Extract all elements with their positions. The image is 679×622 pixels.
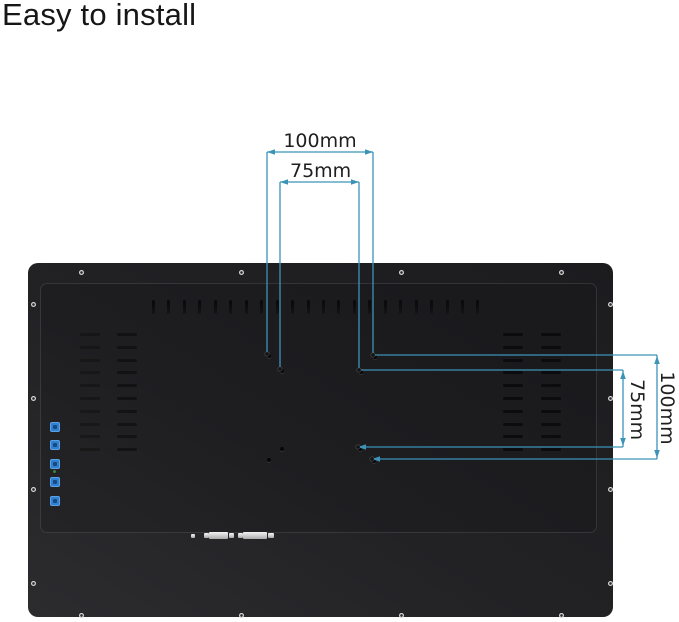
monitor-inner-panel bbox=[40, 283, 597, 533]
vent-slot-side bbox=[541, 359, 561, 362]
screw bbox=[559, 270, 564, 275]
side-control-button bbox=[50, 459, 60, 469]
vent-slot-top bbox=[260, 300, 263, 314]
vent-slot-side bbox=[541, 448, 561, 451]
screw bbox=[79, 613, 84, 618]
vent-slot-side bbox=[541, 397, 561, 400]
vent-slot-side bbox=[503, 346, 523, 349]
vesa-mount-hole bbox=[267, 458, 271, 462]
io-port bbox=[209, 532, 228, 539]
vent-slot-top bbox=[430, 300, 433, 314]
vesa-mount-hole bbox=[267, 354, 271, 358]
vent-slot-side bbox=[541, 410, 561, 413]
vent-slot-side bbox=[80, 435, 100, 438]
vent-slot-top bbox=[384, 300, 387, 314]
screw bbox=[608, 302, 613, 307]
io-port bbox=[229, 533, 234, 538]
vent-slot-side bbox=[541, 423, 561, 426]
screw bbox=[608, 581, 613, 586]
vent-slot-top bbox=[446, 300, 449, 314]
vent-slot-top bbox=[198, 300, 201, 314]
vent-slot-side bbox=[541, 371, 561, 374]
vent-slot-side bbox=[503, 384, 523, 387]
vent-slot-side bbox=[117, 359, 137, 362]
vent-slot-side bbox=[541, 346, 561, 349]
page-title: Easy to install bbox=[2, 0, 196, 35]
product-image: Easy to install bbox=[0, 0, 679, 622]
vent-slot-side bbox=[541, 333, 561, 336]
power-led bbox=[53, 470, 56, 473]
vent-slot-top bbox=[167, 300, 170, 314]
vent-slot-side bbox=[541, 384, 561, 387]
dim-label-right-75mm: 75mm bbox=[626, 379, 648, 439]
vent-slot-top bbox=[214, 300, 217, 314]
vent-slot-top bbox=[276, 300, 279, 314]
io-port bbox=[191, 534, 195, 538]
vesa-mount-hole bbox=[280, 369, 284, 373]
screw bbox=[399, 613, 404, 618]
vent-slot-side bbox=[80, 397, 100, 400]
io-port bbox=[243, 532, 267, 539]
vent-slot-side bbox=[117, 448, 137, 451]
screw bbox=[239, 613, 244, 618]
vent-slot-side bbox=[80, 423, 100, 426]
vent-slot-top bbox=[353, 300, 356, 314]
screw bbox=[79, 270, 84, 275]
vesa-mount-hole bbox=[358, 447, 362, 451]
vent-slot-side bbox=[80, 346, 100, 349]
vent-slot-side bbox=[80, 359, 100, 362]
screw bbox=[608, 396, 613, 401]
vent-slot-top bbox=[183, 300, 186, 314]
vent-slot-side bbox=[117, 410, 137, 413]
vent-slot-top bbox=[152, 300, 155, 314]
vent-slot-top bbox=[229, 300, 232, 314]
vesa-mount-hole bbox=[373, 355, 377, 359]
vent-slot-side bbox=[503, 410, 523, 413]
vent-slot-side bbox=[80, 371, 100, 374]
vent-slot-top bbox=[337, 300, 340, 314]
screw bbox=[31, 487, 36, 492]
screw bbox=[559, 613, 564, 618]
screw bbox=[31, 396, 36, 401]
side-control-button bbox=[50, 440, 60, 450]
vent-slot-top bbox=[415, 300, 418, 314]
vent-slot-side bbox=[503, 448, 523, 451]
screw bbox=[399, 270, 404, 275]
vent-slot-side bbox=[80, 448, 100, 451]
vent-slot-top bbox=[368, 300, 371, 314]
vent-slot-side bbox=[117, 333, 137, 336]
vent-slot-top bbox=[399, 300, 402, 314]
vent-slot-side bbox=[503, 435, 523, 438]
dim-label-right-100mm: 100mm bbox=[656, 371, 678, 445]
vent-slot-top bbox=[245, 300, 248, 314]
vent-slot-side bbox=[503, 359, 523, 362]
vent-slot-side bbox=[80, 384, 100, 387]
vent-slot-side bbox=[117, 346, 137, 349]
vent-slot-top bbox=[291, 300, 294, 314]
vent-slot-top bbox=[307, 300, 310, 314]
io-port bbox=[268, 533, 274, 538]
vent-slot-side bbox=[117, 423, 137, 426]
dim-label-top-100mm: 100mm bbox=[283, 130, 357, 152]
vent-slot-top bbox=[461, 300, 464, 314]
vent-slot-side bbox=[80, 410, 100, 413]
vent-slot-side bbox=[503, 397, 523, 400]
vent-slot-side bbox=[503, 371, 523, 374]
screw bbox=[239, 270, 244, 275]
vesa-mount-hole bbox=[372, 459, 376, 463]
side-control-button bbox=[50, 477, 60, 487]
vent-slot-top bbox=[322, 300, 325, 314]
monitor-back-panel bbox=[28, 263, 613, 617]
screw bbox=[31, 581, 36, 586]
vent-slot-side bbox=[117, 384, 137, 387]
side-control-button bbox=[50, 422, 60, 432]
screw bbox=[608, 487, 613, 492]
vent-slot-side bbox=[80, 333, 100, 336]
screw bbox=[31, 302, 36, 307]
vent-slot-top bbox=[476, 300, 479, 314]
dim-label-top-75mm: 75mm bbox=[290, 160, 350, 182]
vent-slot-side bbox=[541, 435, 561, 438]
vesa-mount-hole bbox=[280, 447, 284, 451]
vent-slot-side bbox=[117, 435, 137, 438]
vent-slot-side bbox=[503, 423, 523, 426]
side-control-button bbox=[50, 496, 60, 506]
vesa-mount-hole bbox=[359, 370, 363, 374]
vent-slot-side bbox=[503, 333, 523, 336]
vent-slot-side bbox=[117, 371, 137, 374]
vent-slot-side bbox=[117, 397, 137, 400]
